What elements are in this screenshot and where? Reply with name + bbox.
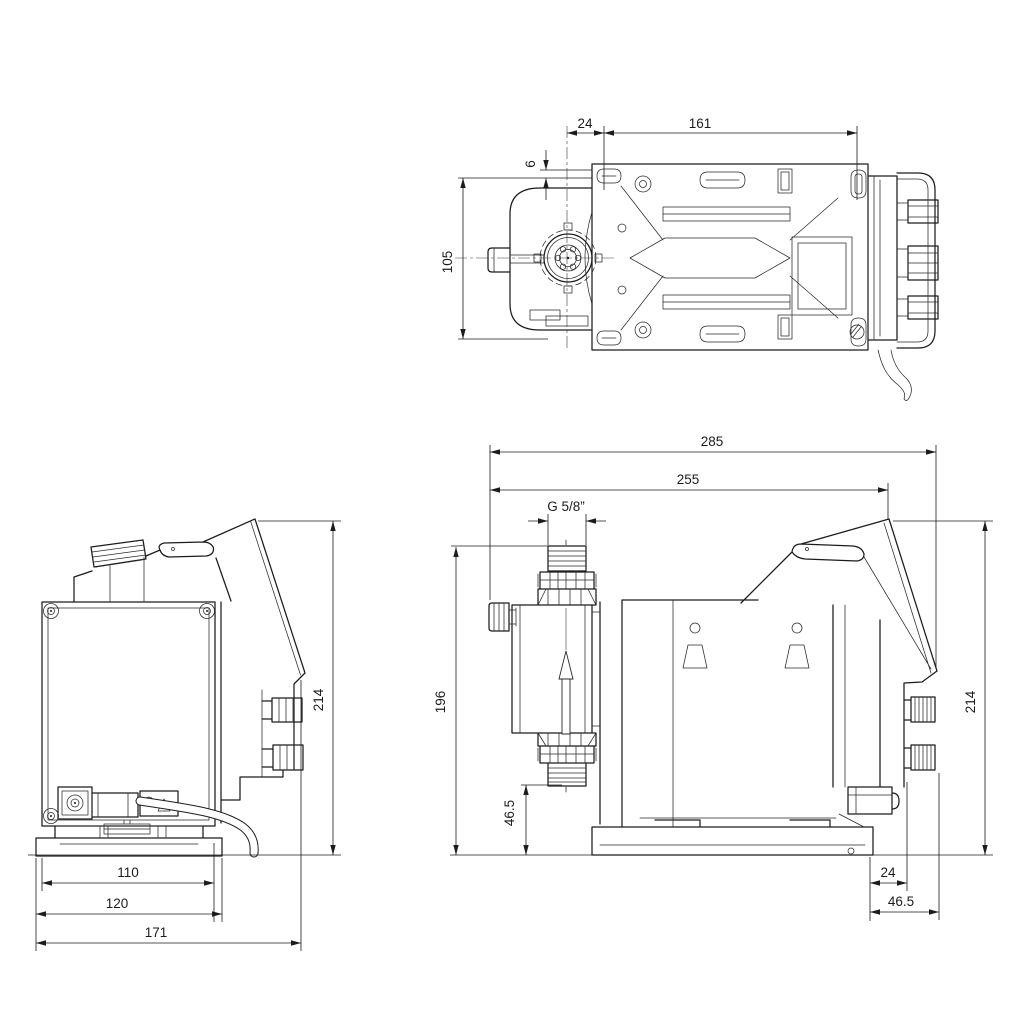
dim-label-24: 24: [577, 116, 593, 131]
dim-label-120: 120: [106, 896, 129, 911]
centerlines: [455, 126, 614, 348]
dim-label-161: 161: [689, 116, 712, 131]
boss-screw: [635, 176, 651, 192]
dim-label-196: 196: [433, 691, 448, 714]
side-view-pump: 285 255 G 5/8” 196 46.5 214 24 46.5: [433, 434, 993, 921]
dim-label-110: 110: [117, 865, 139, 880]
dim-label-24-side: 24: [880, 865, 896, 880]
dosing-pump-dimensional-drawing: 24 161 6 105 285 255 G 5/8” 196 46.5: [0, 0, 1024, 1024]
mains-cable-top: [878, 350, 911, 400]
side-view-dimensions: 285 255 G 5/8” 196 46.5 214 24 46.5: [433, 434, 993, 921]
dim-label-255: 255: [677, 472, 700, 487]
boss-screw: [635, 322, 651, 338]
flow-direction-arrow: [559, 651, 573, 734]
keyhole-circle: [690, 623, 700, 633]
technical-drawing-canvas: 24 161 6 105 285 255 G 5/8” 196 46.5: [0, 0, 1024, 1024]
front-view-pump: 214 110 120 171: [28, 519, 341, 951]
dim-label-214-side: 214: [963, 690, 978, 713]
keyhole-circle: [792, 623, 802, 633]
top-view-dimensions: 24 161 6 105: [440, 116, 857, 339]
dim-label-46-5-suction: 46.5: [502, 800, 517, 826]
front-view-details: [48, 521, 301, 844]
front-view-body: [36, 519, 305, 856]
corner-screws: [44, 604, 215, 824]
dim-label-171: 171: [145, 925, 168, 940]
side-view-body: [489, 519, 937, 855]
pump-head-side: [489, 546, 596, 786]
top-view-pump: 24 161 6 105: [440, 116, 938, 400]
dim-label-thread: G 5/8”: [547, 499, 585, 514]
dim-label-214-front: 214: [311, 688, 326, 711]
dim-label-105: 105: [440, 251, 455, 274]
pump-body-side: [592, 519, 937, 855]
dim-label-46-5-knob: 46.5: [888, 894, 914, 909]
wall-mount-keyholes: [683, 645, 809, 668]
dimension-arrows: [36, 521, 336, 946]
dim-label-6: 6: [523, 160, 538, 168]
dim-label-285: 285: [701, 434, 724, 449]
